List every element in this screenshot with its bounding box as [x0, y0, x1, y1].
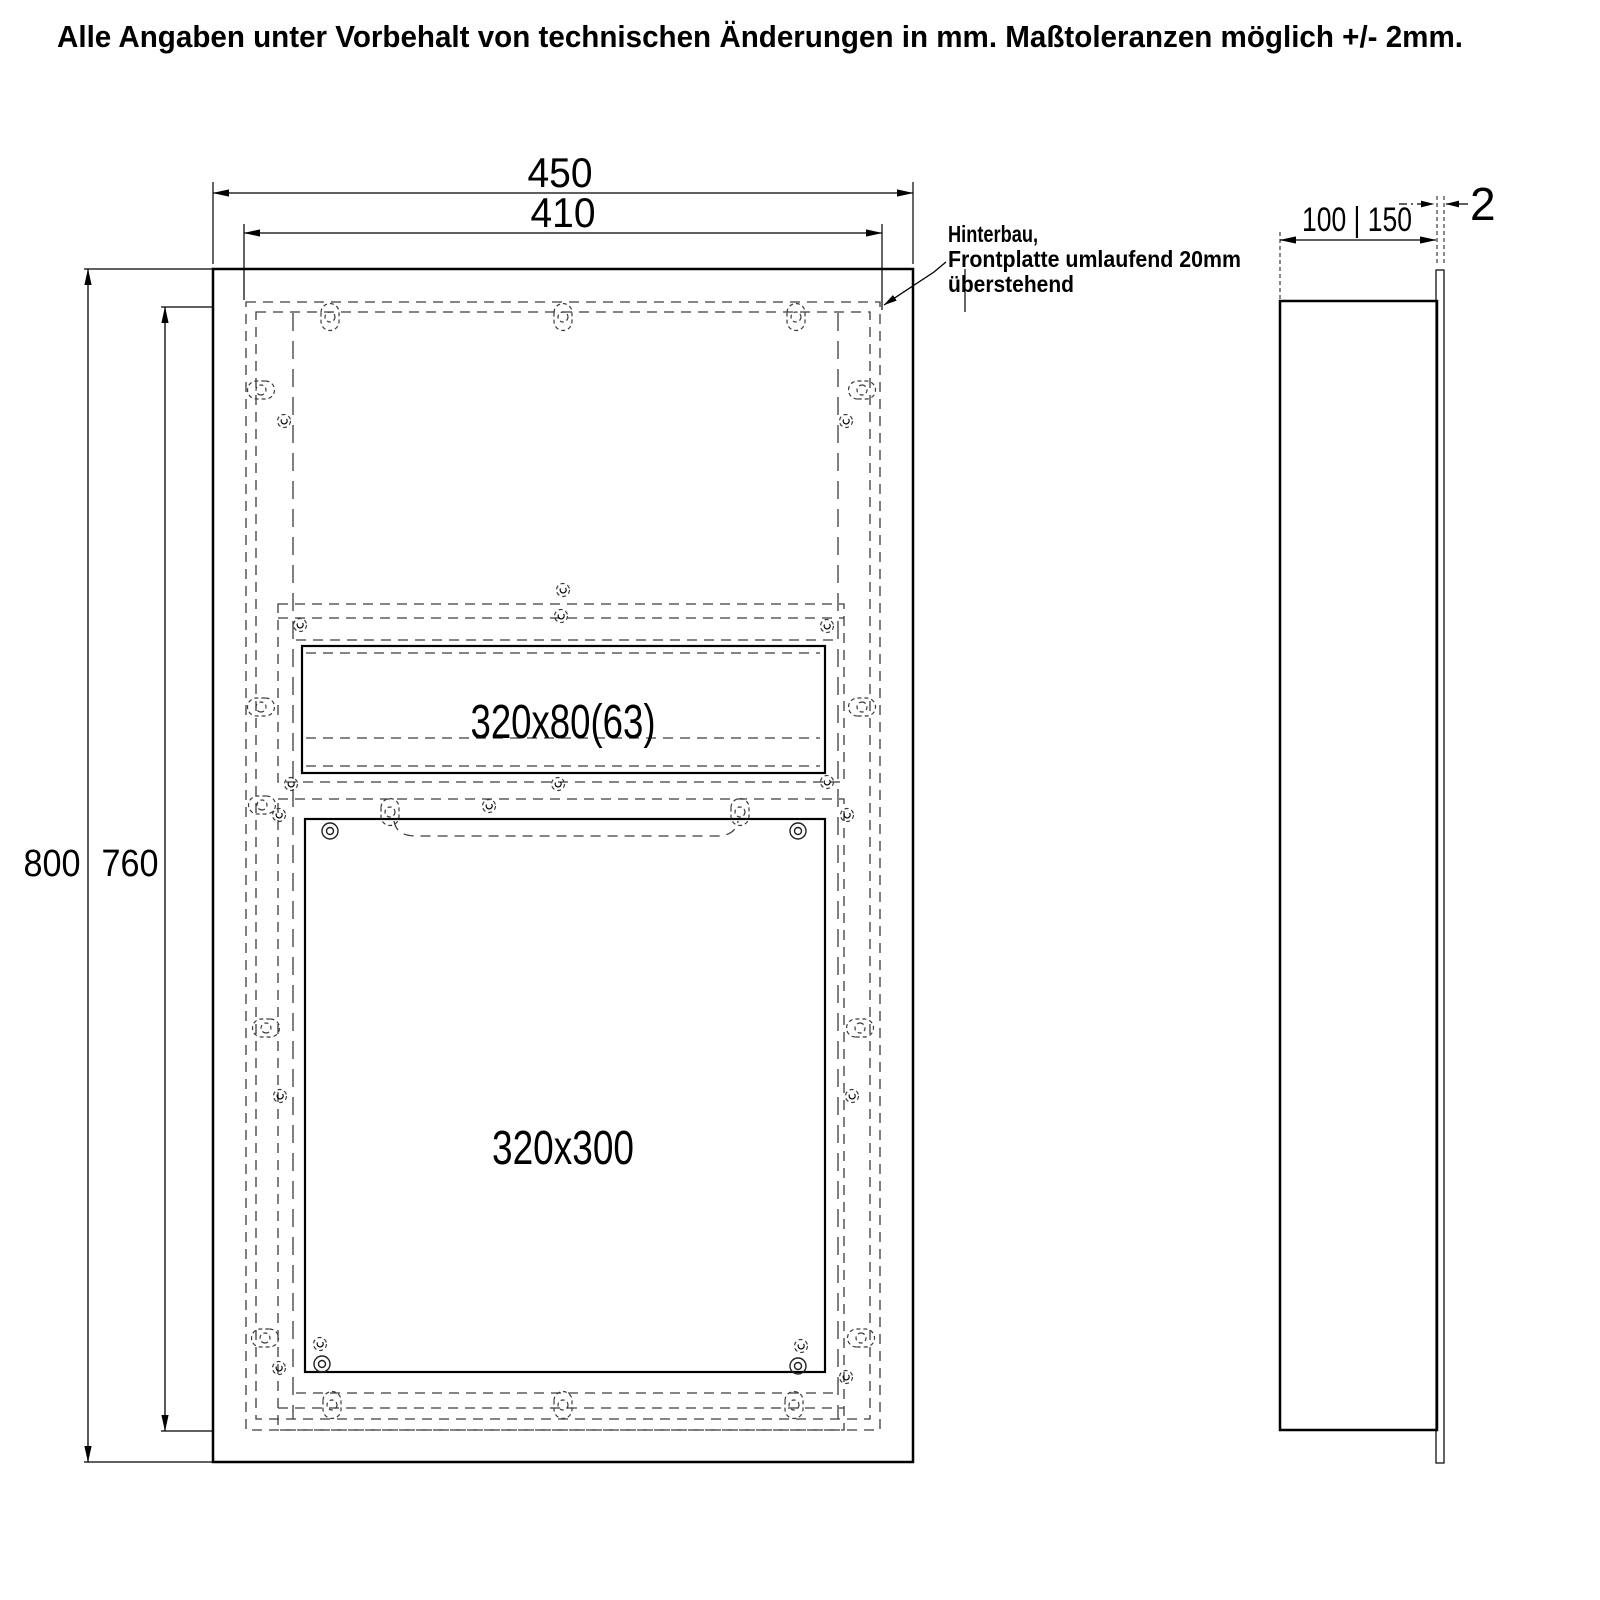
hinterbau-annotation-line-2: Frontplatte umlaufend 20mm [948, 246, 1241, 272]
screw-hole-icon [557, 584, 570, 597]
dim-depth-label: 100 | 150 [1302, 201, 1412, 239]
front-view: 320x80(63) 320x300 [213, 269, 913, 1462]
hinterbau-annotation-line-1: Hinterbau, [948, 221, 1038, 247]
letter-slot-cutout-label: 320x80(63) [471, 696, 656, 749]
screw-slot-icon [554, 1392, 572, 1419]
screw-slot-icon [787, 304, 805, 331]
screw-slot-icon [323, 1392, 341, 1419]
dim-inner-height-label: 760 [102, 843, 159, 885]
hinterbau-annotation: Hinterbau, Frontplatte umlaufend 20mm üb… [884, 221, 1241, 312]
screw-hole-icon [314, 1338, 327, 1351]
dim-inner-width-label: 410 [531, 189, 596, 236]
corner-screw-icon [790, 823, 806, 839]
screw-hole-icon [294, 619, 307, 632]
screw-slot-icon [554, 304, 572, 331]
corner-screw-icon [314, 1356, 330, 1372]
door-flap-dashed-line [394, 821, 738, 836]
hinterbau-outline-inner [256, 312, 870, 1419]
hinterbau-annotation-line-3: überstehend [948, 271, 1074, 297]
screw-hole-icon [273, 1362, 286, 1375]
screw-hole-icon [846, 1090, 859, 1103]
door-section: 320x300 [278, 799, 844, 1430]
screw-hole-icon [273, 809, 286, 822]
screw-slot-icon [321, 304, 339, 331]
screw-slot-icon [381, 799, 399, 826]
side-body-outline [1280, 301, 1437, 1430]
screw-slot-icon [249, 796, 276, 814]
screw-hole-icon [795, 1340, 808, 1353]
hinterbau-outline-outer [246, 302, 880, 1430]
technical-drawing-page: Alle Angaben unter Vorbehalt von technis… [0, 0, 1600, 1600]
screw-hole-icon [555, 610, 568, 623]
screw-slot-icon [731, 799, 749, 826]
screw-hole-icon [840, 415, 853, 428]
screw-hole-icon [278, 415, 291, 428]
front-plate-outline [213, 269, 913, 1462]
door-cutout-label: 320x300 [492, 1122, 634, 1175]
screw-hole-icon [821, 620, 834, 633]
corner-screw-icon [322, 823, 338, 839]
side-view: 100 | 150 2 [1280, 178, 1496, 1463]
door-frame-dashed [278, 799, 844, 1430]
screw-hole-icon [841, 809, 854, 822]
dim-outer-height-label: 800 [24, 843, 81, 885]
screw-slot-icon [849, 381, 876, 399]
tolerance-note: Alle Angaben unter Vorbehalt von technis… [57, 19, 1463, 54]
letter-slot-section: 320x80(63) [278, 604, 844, 782]
screw-slot-icon [248, 698, 275, 716]
screw-slot-icon [248, 381, 275, 399]
screw-hole-icon [840, 1371, 853, 1384]
screw-hole-icon [285, 778, 298, 791]
front-dimensions: 450 410 800 760 [24, 149, 914, 1462]
screw-hole-icon [274, 1090, 287, 1103]
screw-hole-icon [483, 800, 496, 813]
screw-slot-icon [785, 1392, 803, 1419]
screw-slot-icon [849, 698, 876, 716]
slot-frame-dashed [278, 604, 844, 782]
door-opening [305, 819, 825, 1372]
dim-plate-thickness-label: 2 [1470, 178, 1496, 230]
screw-hole-icon [552, 778, 565, 791]
